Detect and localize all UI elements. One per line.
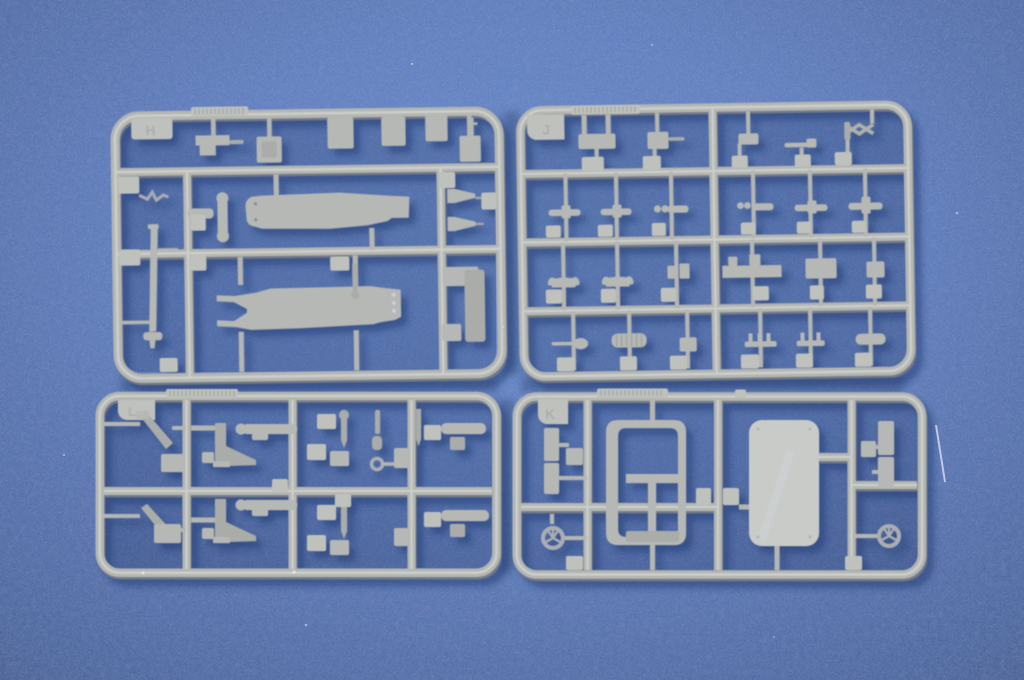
svg-text:K: K [545, 406, 555, 422]
svg-text:H: H [145, 122, 155, 138]
svg-text:J: J [542, 122, 550, 138]
svg-text:L: L [128, 404, 136, 419]
